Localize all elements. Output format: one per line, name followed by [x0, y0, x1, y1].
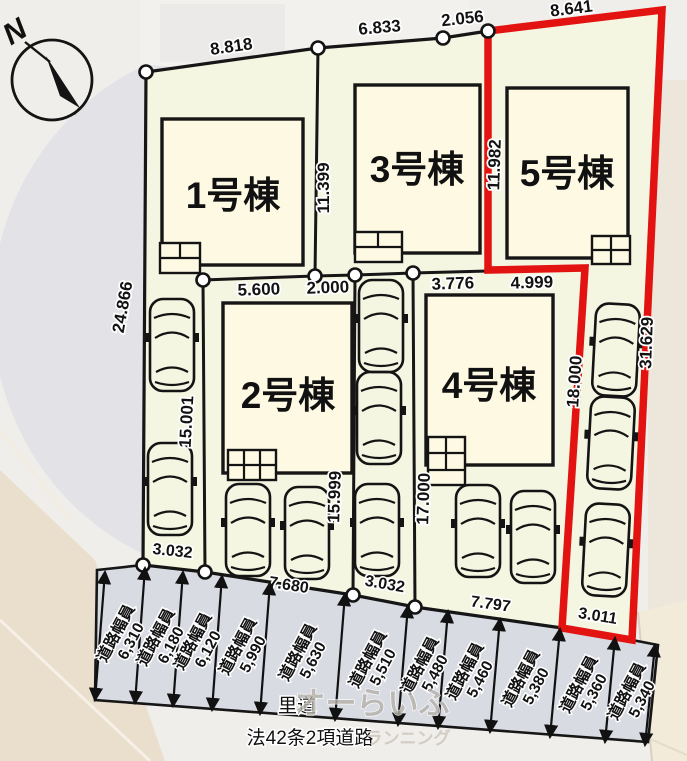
dim-lot5-left: 11.982: [484, 139, 505, 191]
dim-lot2-top-1: 5.600: [237, 279, 280, 299]
building-5-porch: [592, 236, 630, 264]
vertex-marker: [407, 267, 420, 280]
dim-lot2-top-2: 2.000: [306, 277, 349, 297]
dim-top-2: 6.833: [358, 16, 402, 39]
dim-lot4-left: 17.000: [413, 472, 434, 525]
building-2: 2号棟: [223, 303, 352, 480]
dim-lot3-left: 11.399: [314, 162, 333, 213]
building-2-porch: [228, 450, 276, 480]
building-4-label: 4号棟: [442, 365, 538, 406]
site-plan-svg: 1号棟 3号棟 5号棟: [0, 0, 687, 761]
site-plan-image: 1号棟 3号棟 5号棟: [0, 0, 687, 761]
vertex-marker: [347, 589, 360, 602]
vertex-marker: [349, 269, 362, 282]
watermark-line1: オーらいふ: [295, 686, 450, 721]
vertex-marker: [199, 566, 212, 579]
building-3-label: 3号棟: [370, 149, 466, 190]
dim-lot5-right: 31.629: [636, 316, 657, 369]
dim-lot2-right: 15.999: [324, 470, 345, 523]
lot4-left-boundary: [413, 273, 415, 607]
dim-lot4-top-2: 4.999: [510, 272, 553, 292]
dim-lot5-strip-left: 18.000: [563, 355, 586, 408]
vertex-marker: [409, 601, 422, 614]
building-3-porch: [355, 232, 402, 262]
vertex-marker: [137, 559, 150, 572]
dim-lot2-left: 15.001: [176, 395, 198, 448]
building-1: 1号棟: [160, 119, 303, 273]
vertex-marker: [482, 25, 495, 38]
dim-lot4-top-1: 3.776: [431, 273, 474, 293]
vertex-marker: [197, 274, 210, 287]
vertex-marker: [437, 32, 450, 45]
building-2-label: 2号棟: [241, 375, 337, 416]
building-5: 5号棟: [507, 88, 630, 264]
building-4: 4号棟: [426, 295, 553, 485]
building-1-label: 1号棟: [186, 175, 282, 216]
vertex-marker: [312, 42, 325, 55]
watermark-line2: ランニング: [366, 728, 451, 748]
building-5-label: 5号棟: [520, 153, 616, 194]
building-1-porch: [160, 243, 200, 273]
legal-road-label: 法42条2項道路: [247, 727, 374, 749]
building-3: 3号棟: [355, 85, 480, 262]
lot2-left-boundary: [203, 280, 205, 572]
vertex-marker: [140, 66, 153, 79]
